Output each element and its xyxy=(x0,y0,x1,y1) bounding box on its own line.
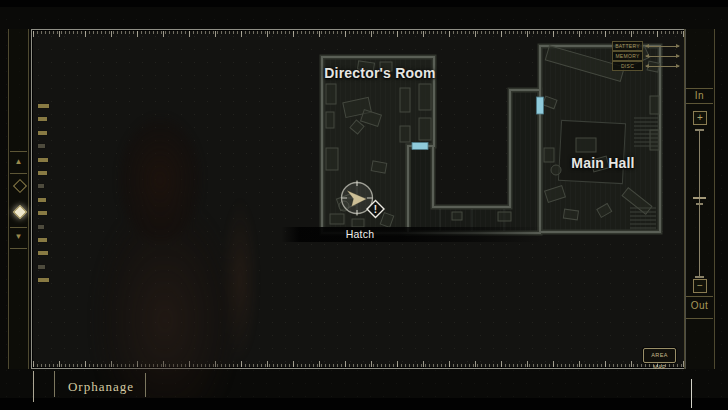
room-label-main-hall: Main Hall xyxy=(553,155,653,171)
map-index-mark[interactable] xyxy=(38,158,48,162)
legend-label-disc: DISC xyxy=(612,61,643,71)
legend-line-icon xyxy=(646,46,679,47)
area-map-button[interactable]: AREA MAP xyxy=(643,348,676,363)
divider xyxy=(686,318,713,319)
zoom-slider-handle-mark xyxy=(696,203,703,205)
slider-bottom-cap xyxy=(695,276,704,278)
floor-up-button[interactable]: ▲ xyxy=(9,158,28,166)
map-index-mark[interactable] xyxy=(38,238,47,242)
map-index-mark[interactable] xyxy=(38,117,47,121)
decorative-line xyxy=(691,379,692,408)
legend-row: BATTERY xyxy=(612,42,679,50)
map-index-mark[interactable] xyxy=(38,198,46,202)
divider xyxy=(686,88,713,89)
legend-line-icon xyxy=(646,56,679,57)
alert-exclamation: ! xyxy=(374,204,377,215)
door-directors-room xyxy=(412,143,428,150)
zoom-in-button[interactable]: + xyxy=(693,111,707,125)
decorative-line xyxy=(33,371,34,402)
divider xyxy=(686,103,713,104)
zoom-out-label: Out xyxy=(685,300,714,311)
zoom-slider-handle[interactable] xyxy=(693,197,706,199)
legend-row: DISC xyxy=(612,62,679,70)
letterbox-bottom xyxy=(0,398,728,410)
room-label-directors-room: Director's Room xyxy=(322,65,438,81)
map-index-mark[interactable] xyxy=(38,131,47,135)
zoom-out-button[interactable]: − xyxy=(693,279,707,293)
map-index-mark[interactable] xyxy=(38,278,49,282)
floor-down-button[interactable]: ▼ xyxy=(9,233,28,241)
poi-label: Hatch xyxy=(290,228,430,240)
divider xyxy=(10,173,27,174)
left-nav-panel: ▲ ▼ xyxy=(8,29,29,369)
map-index-mark[interactable] xyxy=(38,211,47,215)
door-main-hall xyxy=(537,97,544,114)
decorative-line xyxy=(145,373,146,397)
map-index-mark[interactable] xyxy=(38,104,49,108)
divider xyxy=(10,151,27,152)
area-name-label: Orphanage xyxy=(58,379,144,395)
map-index-mark[interactable] xyxy=(38,251,48,255)
current-floor-diamond-icon[interactable] xyxy=(12,205,26,219)
map-index-mark[interactable] xyxy=(38,225,44,229)
decorative-line xyxy=(54,371,55,397)
map-index-mark[interactable] xyxy=(38,144,45,148)
legend-label-memory: MEMORY xyxy=(612,51,643,61)
map-legend: BATTERY MEMORY DISC xyxy=(612,42,679,70)
game-map-screen: ! Hatch Director's Room Main Hall BATTER… xyxy=(0,0,728,410)
map-index-mark[interactable] xyxy=(38,184,44,188)
zoom-in-label: In xyxy=(685,90,714,101)
map-index-mark[interactable] xyxy=(38,171,47,175)
legend-row: MEMORY xyxy=(612,52,679,60)
divider xyxy=(10,227,27,228)
letterbox-top xyxy=(0,0,728,7)
legend-label-battery: BATTERY xyxy=(612,41,643,51)
zoom-panel: In + − Out xyxy=(684,29,715,369)
map-index-mark[interactable] xyxy=(38,265,45,269)
map-index-list xyxy=(38,104,52,294)
divider xyxy=(686,296,713,297)
divider xyxy=(10,248,27,249)
legend-line-icon xyxy=(646,66,679,67)
floor-diamond-icon[interactable] xyxy=(12,179,26,193)
